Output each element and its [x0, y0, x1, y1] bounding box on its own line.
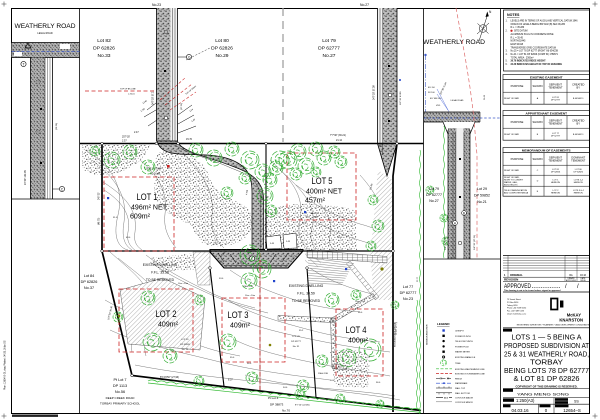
svg-text:SHOWN: SHOWN [533, 157, 543, 161]
svg-text:DP 1113: DP 1113 [113, 384, 127, 388]
svg-text:No.27: No.27 [322, 53, 335, 59]
svg-text:TREE: TREE [455, 363, 461, 365]
svg-text:DP 62826: DP 62826 [551, 171, 561, 173]
svg-text:25 & 31 WEATHERLY ROAD,: 25 & 31 WEATHERLY ROAD, [504, 350, 589, 358]
svg-text:496m² NET: 496m² NET [131, 205, 168, 212]
svg-text:400m²: 400m² [348, 338, 369, 345]
svg-text:19A & 19B: 19A & 19B [318, 372, 328, 375]
svg-text:409m²: 409m² [158, 322, 179, 329]
svg-text:DP 59852: DP 59852 [474, 194, 490, 198]
svg-text:BEING LOTS 78 DP 62777: BEING LOTS 78 DP 62777 [504, 367, 589, 375]
svg-text:Pt Lot 4: Pt Lot 4 [268, 396, 279, 400]
svg-text:409m²: 409m² [230, 323, 251, 330]
svg-text:R.L. = 35.45: R.L. = 35.45 [511, 37, 524, 39]
svg-text:LEVELS ARE IN TERMS OF AUCKLAN: LEVELS ARE IN TERMS OF AUCKLAND VERTICAL… [511, 20, 579, 23]
svg-text:TO BE REMOVED: TO BE REMOVED [292, 299, 321, 303]
svg-text:No.23: No.23 [152, 3, 161, 7]
svg-text:DP 38873: DP 38873 [270, 403, 284, 407]
svg-text:33.77: 33.77 [417, 276, 419, 282]
svg-text:RA: RA [569, 274, 573, 277]
svg-text:Phone +64 9 489 5132: Phone +64 9 489 5132 [507, 308, 526, 310]
svg-text:LOT 3: LOT 3 [228, 310, 249, 320]
svg-text:SHOWN: SHOWN [533, 84, 543, 88]
svg-text:KNARSTON: KNARSTON [559, 317, 583, 322]
svg-text:No.56: No.56 [115, 390, 125, 394]
svg-text:TENEMENT: TENEMENT [571, 158, 586, 162]
svg-text:WEATHERLY ROAD: WEATHERLY ROAD [423, 39, 485, 46]
svg-text:No.70: No.70 [282, 409, 290, 413]
svg-text:36.70 INDICATES RIDGE HEIGHT: 36.70 INDICATES RIDGE HEIGHT [511, 60, 547, 63]
svg-text:347°30' 37.21: 347°30' 37.21 [445, 236, 447, 250]
svg-text:DP 62777: DP 62777 [291, 341, 301, 343]
svg-text:REGISTERED SURVEYORS • PLANNER: REGISTERED SURVEYORS • PLANNERS • LAND D… [517, 323, 590, 326]
svg-text:400m² NET: 400m² NET [306, 189, 343, 196]
svg-text:(46.75): (46.75) [99, 217, 101, 225]
svg-text:SITE DATUM: SITE DATUM [514, 30, 528, 33]
svg-text:347°30' (37.21): 347°30' (37.21) [474, 235, 476, 250]
svg-text:WOODBOURNE GROVE: WOODBOURNE GROVE [395, 322, 397, 347]
svg-text:TENEMENT: TENEMENT [548, 121, 563, 125]
svg-text:No. 25: No. 25 [182, 349, 189, 351]
svg-text:HEREON: HEREON [574, 192, 583, 194]
svg-text:COPYRIGHT OF THIS DRAWING: COPYRIGHT OF THIS DRAWING IS RESERVED. [516, 384, 578, 388]
svg-text:10m × 10m: 10m × 10m [355, 300, 365, 303]
svg-text:APPURTENANT EASEMENT: APPURTENANT EASEMENT [526, 111, 568, 115]
svg-text:POWER POLE: POWER POLE [455, 346, 469, 348]
svg-text:& LOT 81 DP 62826: & LOT 81 DP 62826 [514, 375, 580, 383]
svg-text:347°30': 347°30' [99, 192, 101, 200]
svg-text:Fax +64 9 489 5133: Fax +64 9 489 5133 [507, 311, 524, 313]
svg-text:ORIGIN OF LEVELS BEING BM 5132: ORIGIN OF LEVELS BEING BM 5132 (B) SEC 9… [511, 24, 566, 26]
svg-text:DATE: DATE [504, 405, 510, 408]
svg-text:TOTAL AREA : 2365m²: TOTAL AREA : 2365m² [511, 56, 534, 59]
svg-text:NORTH:52445: NORTH:52445 [511, 41, 527, 43]
svg-text:PURPOSE: PURPOSE [511, 157, 524, 161]
svg-text:WATERMAIN: WATERMAIN [455, 382, 468, 385]
svg-text:WALL TOP: WALL TOP [455, 387, 466, 390]
svg-text:DRAWN BY: DRAWN BY [556, 398, 567, 401]
svg-text:ORIGINAL: ORIGINAL [510, 273, 523, 277]
svg-text:No. 31: No. 31 [293, 346, 300, 348]
svg-text:TELECOM PLINTH: TELECOM PLINTH [455, 341, 473, 343]
svg-text:DP 62777: DP 62777 [551, 135, 561, 137]
svg-text:DP 62826: DP 62826 [180, 344, 190, 346]
svg-text:DP 62777: DP 62777 [318, 46, 340, 52]
svg-text:LOT 78: LOT 78 [292, 336, 300, 338]
svg-text:257°30': 257°30' [122, 136, 131, 139]
svg-text:NEEDBOURNE DRIVE: NEEDBOURNE DRIVE [427, 324, 429, 345]
svg-text:No.29: No.29 [215, 53, 228, 59]
svg-text:No.23: No.23 [403, 297, 413, 301]
svg-text:ALUMINIUM PLUG IN CONCRETE DRI: ALUMINIUM PLUG IN CONCRETE DRIVE [511, 33, 555, 36]
svg-text:CONTOUR MINOR: CONTOUR MINOR [455, 402, 473, 404]
svg-text:WALL BOTTOM: WALL BOTTOM [455, 392, 470, 395]
svg-text:B.465082.1: B.465082.1 [573, 134, 584, 136]
svg-text:21.12: 21.12 [336, 139, 343, 142]
svg-text:POWER PLINTH: POWER PLINTH [455, 336, 471, 338]
svg-text:PURPOSE: PURPOSE [511, 84, 524, 88]
svg-text:EXISTING WASTEWATER LINE: EXISTING WASTEWATER LINE [455, 368, 485, 371]
svg-text:WEATHERLY ROAD: WEATHERLY ROAD [15, 23, 76, 30]
svg-text:SV 100: SV 100 [428, 92, 435, 94]
svg-text:Lot 79: Lot 79 [429, 187, 439, 191]
svg-text:email: mck@xtra.co.nz: email: mck@xtra.co.nz [507, 313, 526, 316]
svg-text:CESS: CESS [313, 217, 319, 219]
svg-text:LEGAL ROAD: LEGAL ROAD [451, 99, 464, 102]
svg-text:RIGHT OF WAY: RIGHT OF WAY [504, 133, 520, 136]
svg-text:73 Sunart Street: 73 Sunart Street [507, 298, 521, 301]
svg-text:No.37: No.37 [84, 286, 94, 290]
svg-text:Pt Lot 7: Pt Lot 7 [113, 378, 126, 382]
svg-text:This drawing is not to be issu: This drawing is not to be issued unless … [504, 289, 561, 292]
svg-text:10m × 10m: 10m × 10m [245, 294, 255, 297]
svg-text:No.27: No.27 [360, 3, 369, 7]
svg-text:10m × 10m: 10m × 10m [178, 282, 188, 285]
svg-text:19A 1 TBD: 19A 1 TBD [310, 212, 320, 215]
svg-text:RIGHT OF WAY: RIGHT OF WAY [504, 97, 520, 100]
svg-text:CESSPIT: CESSPIT [455, 331, 465, 333]
svg-text:HYD: HYD [436, 105, 441, 107]
svg-text:Lot 84: Lot 84 [84, 274, 95, 278]
svg-text:167°30' 43.89: 167°30' 43.89 [400, 91, 402, 105]
svg-text:Lot 77: Lot 77 [403, 285, 414, 289]
svg-text:EAST:23418: EAST:23418 [511, 43, 524, 46]
svg-text:(26.29): (26.29) [56, 123, 58, 130]
svg-text:PURPOSE: PURPOSE [511, 120, 524, 124]
svg-text:8°1'15'50" (27,96): 8°1'15'50" (27,96) [160, 376, 179, 379]
svg-text:Plan: 12654-S-01.dwg Plotted:: Plan: 12654-S-01.dwg Plotted: 04.03.16 b… [4, 340, 7, 390]
svg-text:NOTES: NOTES [507, 13, 520, 17]
svg-text:Lot 82: Lot 82 [97, 38, 111, 44]
svg-text:LOT 81: LOT 81 [181, 339, 189, 341]
svg-text:LEGAL ROAD: LEGAL ROAD [37, 32, 52, 35]
svg-text:B.465082.1: B.465082.1 [573, 98, 584, 100]
svg-text:1.49: 1.49 [262, 195, 264, 200]
svg-text:TO BE REMOVED: TO BE REMOVED [146, 278, 175, 282]
svg-text:DP 62777: DP 62777 [551, 99, 561, 101]
svg-text:Torbay 0740: Torbay 0740 [507, 304, 517, 307]
svg-text:T: T [22, 63, 24, 67]
svg-text:1:250(A3): 1:250(A3) [516, 398, 535, 403]
svg-text:SHOWN: SHOWN [533, 120, 543, 124]
svg-text:REVISION: REVISION [504, 278, 518, 282]
svg-text:LEGEND: LEGEND [437, 322, 450, 326]
svg-text:RIGHT OF WAY: RIGHT OF WAY [504, 169, 520, 172]
svg-text:B: B [463, 212, 465, 216]
svg-text:ELECTRICITY,: ELECTRICITY, [504, 184, 518, 186]
svg-text:347°30' 37.09: 347°30' 37.09 [373, 85, 376, 100]
svg-text:04.03.16: 04.03.16 [511, 408, 529, 413]
svg-text:FENCE: FENCE [455, 378, 463, 380]
svg-text:LOTS 1 — 5 BEING A: LOTS 1 — 5 BEING A [512, 334, 582, 342]
svg-text:EXISTING DWELLING: EXISTING DWELLING [289, 284, 324, 288]
svg-text:PO Box 3456: PO Box 3456 [507, 302, 518, 304]
svg-text:No.33: No.33 [97, 53, 110, 59]
svg-text:36.40: 36.40 [484, 94, 486, 100]
svg-text:DP 62777: DP 62777 [426, 193, 442, 197]
svg-text:SS: SS [574, 400, 579, 404]
svg-text:F.F.L. 33.58: F.F.L. 33.58 [151, 271, 169, 275]
svg-text:HEREON: HEREON [551, 192, 560, 194]
svg-text:TOP OF BK LINE: TOP OF BK LINE [120, 89, 136, 91]
svg-text:LOT 1: LOT 1 [137, 192, 158, 202]
svg-text:457m²: 457m² [305, 198, 326, 205]
svg-text:LOT 4: LOT 4 [346, 325, 367, 335]
svg-text:EXISTING MANHOLE: EXISTING MANHOLE [455, 356, 476, 359]
svg-text:DP 62826: DP 62826 [93, 46, 115, 52]
svg-text:03.16: 03.16 [580, 274, 587, 277]
svg-text:DP 62826: DP 62826 [211, 46, 233, 52]
svg-text:347°30' 37.21: 347°30' 37.21 [152, 90, 155, 105]
svg-text:TENEMENT: TENEMENT [548, 85, 563, 89]
svg-text:WATER METER: WATER METER [455, 351, 470, 354]
svg-text:BY: BY [577, 121, 581, 125]
svg-text:L 26.01: L 26.01 [128, 94, 135, 96]
svg-text:TORBAY: TORBAY [530, 359, 563, 367]
svg-text:2.47: 2.47 [134, 131, 139, 134]
svg-text:DP 62777: DP 62777 [400, 291, 417, 295]
svg-text:HEREON: HEREON [574, 182, 583, 184]
svg-text:Lot 79: Lot 79 [322, 38, 336, 44]
svg-text:F.F.L. 34.59: F.F.L. 34.59 [297, 292, 315, 296]
svg-text:CONTOUR MAJOR: CONTOUR MAJOR [455, 397, 474, 400]
svg-text:34.20 INDICATES HEIGHT OF TOP: 34.20 INDICATES HEIGHT OF TOP OF BUILDIN… [511, 63, 563, 66]
svg-text:BY: BY [577, 85, 581, 89]
svg-text:MEMORANDUM OF EASEMENTS: MEMORANDUM OF EASEMENTS [522, 148, 571, 152]
svg-text:No.31 = LOT 81 DP 62826 (COMP: No.31 = LOT 81 DP 62826 (COMP IN) 17B/87… [511, 54, 559, 56]
svg-text:ISSUE: ISSUE [580, 280, 586, 282]
svg-text:AND COMPUTER MEDIA: AND COMPUTER MEDIA [504, 191, 529, 194]
svg-text:8°7'14" (22,85): 8°7'14" (22,85) [295, 405, 310, 407]
svg-text:DEEP CREEK ROAD: DEEP CREEK ROAD [106, 396, 136, 400]
svg-text:LOT 2: LOT 2 [156, 309, 177, 319]
svg-text:7°7'30" (36.21): 7°7'30" (36.21) [330, 134, 346, 137]
svg-text:TENEMENT: TENEMENT [548, 158, 563, 162]
svg-text:PROPOSED SUBDIVISION AT: PROPOSED SUBDIVISION AT [504, 342, 590, 350]
svg-text:12654–S: 12654–S [563, 408, 581, 413]
svg-text:No.21: No.21 [477, 200, 487, 204]
svg-text:609m²: 609m² [130, 214, 151, 221]
svg-text:APPROVED: APPROVED [504, 283, 531, 290]
svg-text:DP 62826: DP 62826 [574, 171, 584, 173]
svg-text:TITLE: TITLE [504, 330, 510, 332]
svg-text:2.57: 2.57 [122, 140, 127, 143]
svg-text:No.25 = LOT 78 DP 62777 (RIGH: No.25 = LOT 78 DP 62777 (RIGHT IN) 634/2… [511, 51, 559, 53]
svg-text:YANG MENG SONG: YANG MENG SONG [517, 392, 569, 397]
svg-text:8.07: 8.07 [228, 379, 233, 382]
svg-text:R.L. = 35.280: R.L. = 35.280 [511, 27, 525, 29]
svg-text:EXISTING DWELLING: EXISTING DWELLING [143, 263, 178, 267]
svg-text:EX. FH: EX. FH [428, 87, 435, 89]
svg-text:SCALE:: SCALE: [504, 399, 513, 402]
svg-text:HEREON: HEREON [551, 182, 560, 184]
svg-text:15.70: 15.70 [186, 138, 193, 141]
svg-text:No.27: No.27 [429, 199, 439, 203]
svg-text:EXISTING STORMWATER LINE: EXISTING STORMWATER LINE [455, 373, 485, 376]
svg-text:Lot 29: Lot 29 [477, 187, 487, 191]
svg-text:DP 62826: DP 62826 [81, 280, 98, 284]
svg-text:CLIENT: CLIENT [504, 390, 512, 392]
svg-text:LOT 5: LOT 5 [312, 176, 333, 186]
svg-text:EXISTING EASEMENT: EXISTING EASEMENT [530, 75, 563, 79]
svg-text:Lot 80: Lot 80 [215, 38, 229, 44]
svg-text:TRANSVERSE GRID COORDINATE DAT: TRANSVERSE GRID COORDINATE DATUM [511, 46, 557, 49]
svg-text:TORBAY PRIMARY SCHOOL: TORBAY PRIMARY SCHOOL [100, 402, 140, 406]
svg-text:(37.21): (37.21) [181, 103, 183, 110]
svg-text:24°39' 102.05: 24°39' 102.05 [24, 170, 27, 185]
